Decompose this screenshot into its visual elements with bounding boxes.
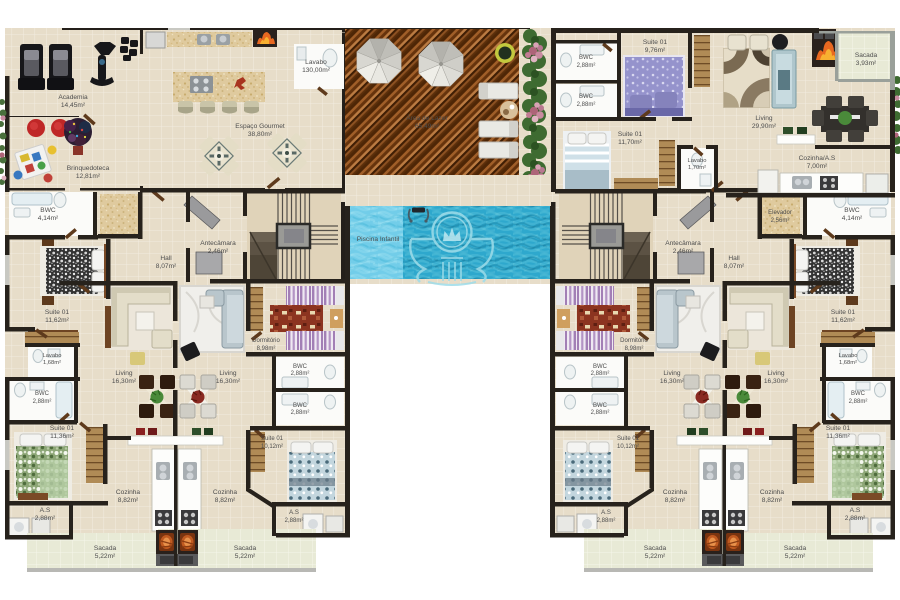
svg-text:Cozinha: Cozinha [663,489,688,496]
svg-text:Lavabo: Lavabo [838,353,857,359]
svg-text:1,68m²: 1,68m² [43,360,61,366]
svg-text:Área de Lazer: Área de Lazer [406,113,448,122]
svg-text:Suite 01: Suite 01 [261,436,284,442]
svg-text:10,12m²: 10,12m² [261,444,283,450]
svg-text:Suite 01: Suite 01 [45,309,70,316]
svg-text:9,76m²: 9,76m² [645,47,666,54]
svg-text:8,82m²: 8,82m² [665,497,686,504]
svg-text:2,88m²: 2,88m² [591,410,610,416]
svg-text:Antecâmara: Antecâmara [665,240,701,247]
svg-text:2,88m²: 2,88m² [597,518,616,524]
svg-text:Lavabo: Lavabo [305,59,327,66]
svg-text:Suite 01: Suite 01 [643,39,668,46]
svg-text:8,98m²: 8,98m² [257,346,276,352]
svg-text:12,81m²: 12,81m² [76,173,101,180]
svg-text:11,70m²: 11,70m² [618,139,643,146]
svg-text:7,00m²: 7,00m² [807,163,828,170]
svg-text:2,46m²: 2,46m² [208,248,229,255]
svg-text:BWC: BWC [35,391,50,397]
svg-text:8,07m²: 8,07m² [156,263,177,270]
svg-text:5,22m²: 5,22m² [785,553,806,560]
svg-text:BWC: BWC [293,364,308,370]
svg-text:38,80m²: 38,80m² [248,131,273,138]
svg-text:BWC: BWC [579,94,594,100]
svg-text:Brinquedoteca: Brinquedoteca [67,165,110,172]
svg-text:11,62m²: 11,62m² [45,317,70,324]
svg-text:Living: Living [219,370,237,377]
svg-text:Espaço Gourmet: Espaço Gourmet [235,123,285,130]
svg-text:11,62m²: 11,62m² [831,317,856,324]
svg-text:2,88m²: 2,88m² [577,63,596,69]
svg-text:29,90m²: 29,90m² [752,123,777,130]
svg-text:BWC: BWC [851,391,866,397]
svg-text:BWC: BWC [40,207,56,214]
svg-text:5,22m²: 5,22m² [95,553,116,560]
svg-text:8,82m²: 8,82m² [118,497,139,504]
svg-text:16,30m²: 16,30m² [216,378,241,385]
svg-text:8,82m²: 8,82m² [762,497,783,504]
svg-text:BWC: BWC [293,403,308,409]
svg-text:2,88m²: 2,88m² [33,399,52,405]
svg-text:Suite 01: Suite 01 [831,309,856,316]
svg-text:16,30m²: 16,30m² [660,378,685,385]
svg-text:Hall: Hall [728,255,740,262]
svg-text:Living: Living [767,370,785,377]
svg-text:2,88m²: 2,88m² [591,371,610,377]
svg-text:2,88m²: 2,88m² [849,399,868,405]
svg-text:Suite 01: Suite 01 [50,425,75,432]
svg-text:BWC: BWC [579,55,594,61]
svg-text:Living: Living [115,370,133,377]
svg-text:3,93m²: 3,93m² [856,60,877,67]
svg-text:Suite 01: Suite 01 [618,131,643,138]
svg-text:Antecâmara: Antecâmara [200,240,236,247]
svg-text:A.S: A.S [601,510,611,516]
svg-text:16,30m²: 16,30m² [112,378,137,385]
svg-text:Sacada: Sacada [234,545,257,552]
svg-text:Cozinha/A.S: Cozinha/A.S [799,155,836,162]
svg-text:2,88m²: 2,88m² [577,102,596,108]
svg-text:Academia: Academia [58,94,88,101]
svg-text:1,68m²: 1,68m² [839,360,857,366]
svg-text:16,30m²: 16,30m² [764,378,789,385]
svg-text:Lavabo: Lavabo [42,353,61,359]
svg-text:Elevador: Elevador [768,210,792,216]
svg-text:2,46m²: 2,46m² [673,248,694,255]
svg-text:130,00m²: 130,00m² [302,67,331,74]
svg-text:2,88m²: 2,88m² [285,518,304,524]
svg-text:2,88m²: 2,88m² [291,371,310,377]
svg-text:11,36m²: 11,36m² [826,433,851,440]
svg-text:Sacada: Sacada [94,545,117,552]
svg-text:1,70m²: 1,70m² [688,165,706,171]
svg-text:Cozinha: Cozinha [116,489,141,496]
svg-text:Sacada: Sacada [644,545,667,552]
svg-text:65,49m²: 65,49m² [415,123,440,130]
svg-text:Suite 01: Suite 01 [826,425,851,432]
svg-text:4,14m²: 4,14m² [842,215,863,222]
svg-text:BWC: BWC [844,207,860,214]
svg-text:Piscina Infantil: Piscina Infantil [357,236,400,243]
svg-text:Hall: Hall [160,255,172,262]
svg-text:2,88m²: 2,88m² [35,515,56,522]
svg-text:10,12m²: 10,12m² [617,444,639,450]
svg-text:8,82m²: 8,82m² [215,497,236,504]
svg-text:Dormitório: Dormitório [620,338,648,344]
svg-text:Living: Living [755,115,773,122]
svg-text:BWC: BWC [593,364,608,370]
svg-text:8,98m²: 8,98m² [625,346,644,352]
svg-text:11,36m²: 11,36m² [50,433,75,440]
svg-text:A.S: A.S [289,510,299,516]
svg-text:5,22m²: 5,22m² [235,553,256,560]
svg-text:Sacada: Sacada [784,545,807,552]
svg-text:Suite 01: Suite 01 [617,436,640,442]
svg-text:A.S: A.S [850,507,861,514]
svg-text:2,56m²: 2,56m² [771,218,790,224]
svg-text:A.S: A.S [40,507,51,514]
svg-text:4,14m²: 4,14m² [38,215,59,222]
svg-text:Cozinha: Cozinha [760,489,785,496]
svg-text:Sacada: Sacada [855,52,878,59]
svg-text:BWC: BWC [593,403,608,409]
svg-text:Living: Living [663,370,681,377]
svg-text:Dormitório: Dormitório [252,338,280,344]
svg-text:14,45m²: 14,45m² [61,102,86,109]
svg-text:2,88m²: 2,88m² [845,515,866,522]
svg-text:Cozinha: Cozinha [213,489,238,496]
svg-text:Lavabo: Lavabo [687,158,706,164]
svg-text:8,07m²: 8,07m² [724,263,745,270]
svg-text:2,88m²: 2,88m² [291,410,310,416]
svg-text:5,22m²: 5,22m² [645,553,666,560]
